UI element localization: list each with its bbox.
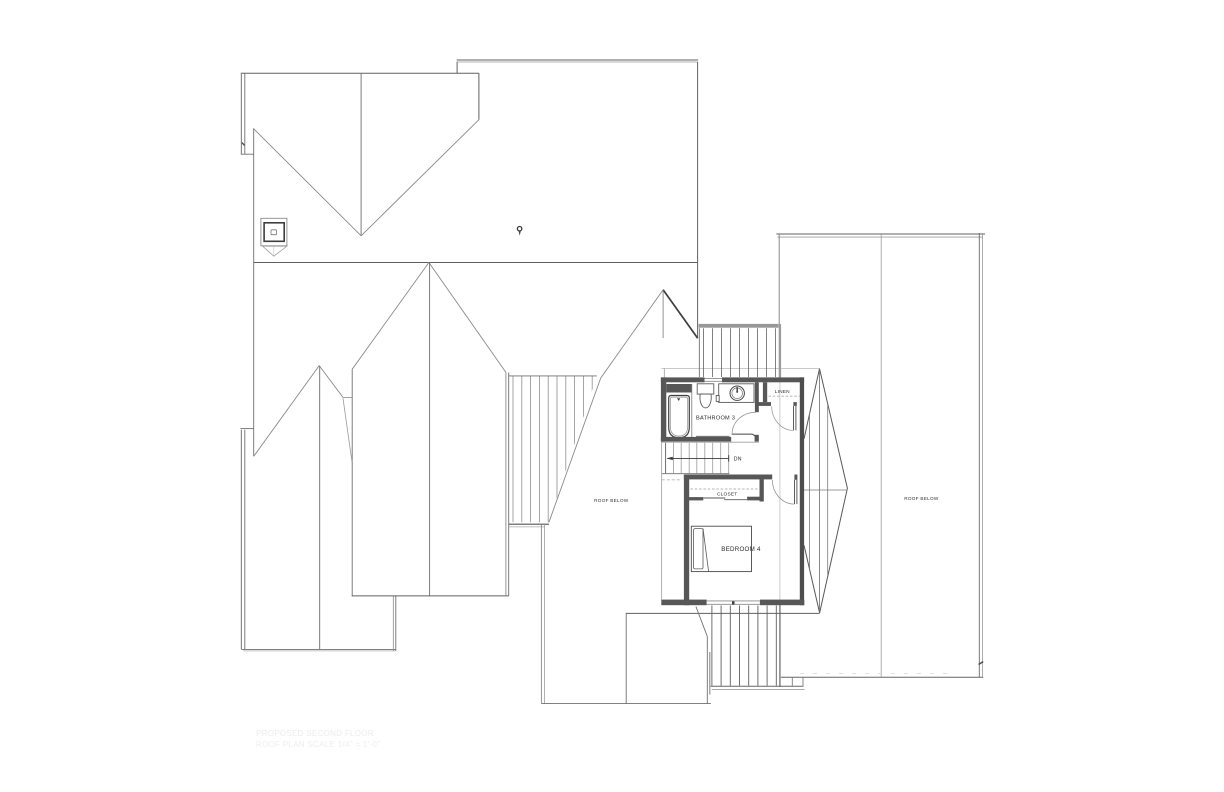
svg-text:PROPOSED SECOND FLOOR: PROPOSED SECOND FLOOR [256,729,374,738]
svg-text:ROOF PLAN SCALE 1/4" = 1'-0": ROOF PLAN SCALE 1/4" = 1'-0" [256,740,380,749]
svg-text:ROOF BELOW: ROOF BELOW [594,498,629,503]
svg-text:LINEN: LINEN [775,389,790,395]
svg-text:BATHROOM 3: BATHROOM 3 [696,415,735,421]
svg-text:ROOF BELOW: ROOF BELOW [904,496,939,501]
svg-text:CLOSET: CLOSET [717,492,737,498]
svg-text:DN: DN [734,457,742,463]
svg-text:BEDROOM 4: BEDROOM 4 [721,546,761,553]
